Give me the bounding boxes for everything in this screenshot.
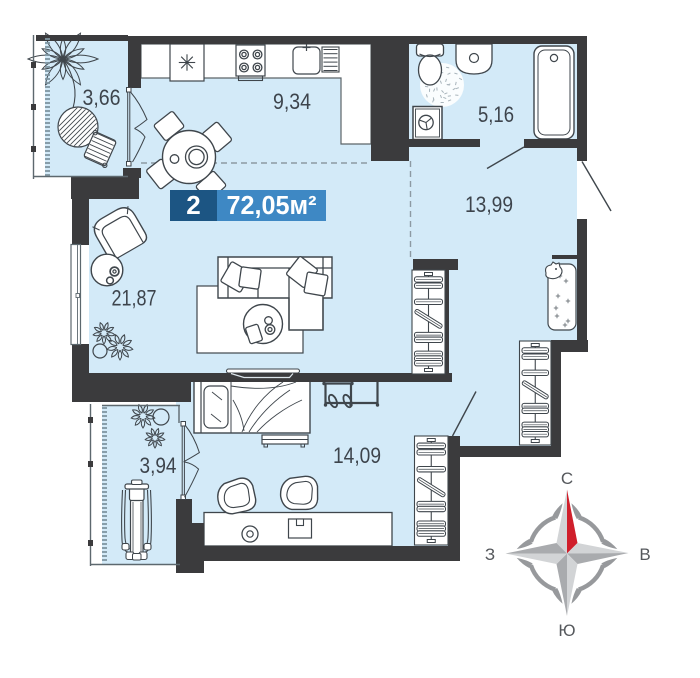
svg-text:3,66: 3,66 <box>83 85 121 110</box>
svg-text:13,99: 13,99 <box>465 192 513 217</box>
svg-text:5,16: 5,16 <box>478 102 514 127</box>
svg-text:3,94: 3,94 <box>140 453 177 478</box>
svg-text:72,05м²: 72,05м² <box>227 192 317 220</box>
svg-text:2: 2 <box>186 190 200 220</box>
svg-text:9,34: 9,34 <box>273 89 311 114</box>
svg-text:21,87: 21,87 <box>112 286 157 311</box>
svg-text:14,09: 14,09 <box>333 443 381 468</box>
svg-text:Ю: Ю <box>558 621 575 640</box>
svg-text:З: З <box>485 545 495 564</box>
svg-text:В: В <box>639 545 650 564</box>
svg-text:С: С <box>561 469 573 488</box>
